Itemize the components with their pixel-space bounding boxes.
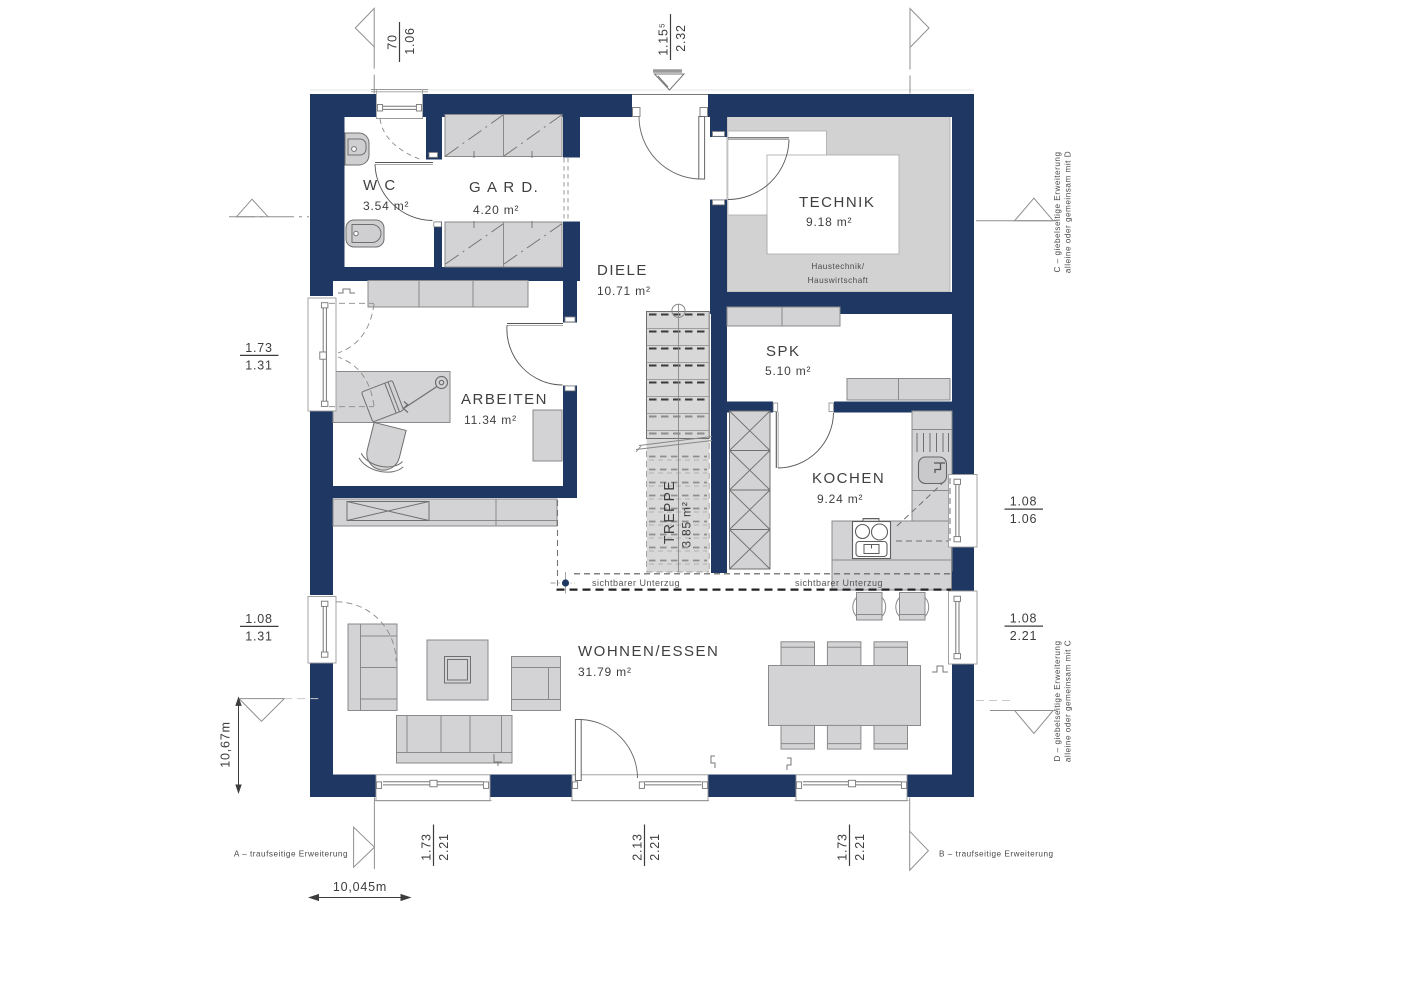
svg-text:10,67m: 10,67m [219, 721, 233, 768]
svg-text:2.21: 2.21 [437, 833, 451, 861]
svg-text:2.32: 2.32 [674, 24, 688, 52]
svg-text:alleine oder gemeinsam mit D: alleine oder gemeinsam mit D [1064, 151, 1073, 273]
svg-text:TREPPE: TREPPE [661, 480, 678, 544]
svg-text:3.54 m²: 3.54 m² [363, 199, 409, 213]
svg-text:alleine oder gemeinsam mit C: alleine oder gemeinsam mit C [1064, 640, 1073, 762]
svg-text:1.08: 1.08 [1010, 612, 1038, 626]
svg-text:10,045m: 10,045m [333, 880, 387, 894]
svg-text:Hauswirtschaft: Hauswirtschaft [808, 276, 869, 285]
svg-text:C – giebelseitige Erweiterung: C – giebelseitige Erweiterung [1053, 152, 1062, 273]
svg-text:WOHNEN/ESSEN: WOHNEN/ESSEN [578, 643, 719, 660]
svg-text:1.06: 1.06 [1010, 512, 1038, 526]
svg-text:2.21: 2.21 [648, 833, 662, 861]
svg-text:2.21: 2.21 [853, 833, 867, 861]
svg-text:W C: W C [363, 177, 397, 194]
svg-text:1.31: 1.31 [245, 630, 273, 644]
svg-text:1.15⁵: 1.15⁵ [657, 22, 671, 56]
svg-text:1.08: 1.08 [245, 612, 273, 626]
svg-text:2.21: 2.21 [1010, 629, 1038, 643]
svg-text:D – giebelseitige Erweiterung: D – giebelseitige Erweiterung [1053, 641, 1062, 762]
svg-text:1.73: 1.73 [245, 341, 273, 355]
svg-text:11.34 m²: 11.34 m² [464, 413, 517, 427]
svg-text:9.18 m²: 9.18 m² [806, 215, 852, 229]
svg-text:DIELE: DIELE [597, 262, 648, 279]
svg-text:4.20 m²: 4.20 m² [473, 203, 519, 217]
svg-text:3.85 m²: 3.85 m² [680, 501, 694, 547]
svg-text:2.13: 2.13 [631, 833, 645, 861]
svg-text:Haustechnik/: Haustechnik/ [811, 262, 865, 271]
svg-text:B – traufseitige Erweiterung: B – traufseitige Erweiterung [939, 850, 1054, 859]
svg-text:1.73: 1.73 [836, 833, 850, 861]
svg-text:A – traufseitige Erweiterung: A – traufseitige Erweiterung [234, 850, 348, 859]
svg-text:sichtbarer Unterzug: sichtbarer Unterzug [795, 578, 883, 588]
svg-text:SPK: SPK [766, 343, 801, 360]
svg-text:70: 70 [386, 34, 400, 50]
svg-text:1.73: 1.73 [420, 833, 434, 861]
svg-text:TECHNIK: TECHNIK [799, 194, 875, 211]
svg-text:1.06: 1.06 [403, 27, 417, 55]
svg-text:9.24 m²: 9.24 m² [817, 492, 863, 506]
svg-text:sichtbarer Unterzug: sichtbarer Unterzug [592, 578, 680, 588]
svg-text:G A R D.: G A R D. [469, 179, 539, 196]
svg-text:5.10 m²: 5.10 m² [765, 364, 811, 378]
svg-text:ARBEITEN: ARBEITEN [461, 391, 548, 408]
svg-text:1.08: 1.08 [1010, 495, 1038, 509]
svg-text:KOCHEN: KOCHEN [812, 470, 885, 487]
svg-text:31.79 m²: 31.79 m² [578, 665, 632, 679]
svg-text:1.31: 1.31 [245, 359, 273, 373]
svg-text:10.71 m²: 10.71 m² [597, 284, 651, 298]
